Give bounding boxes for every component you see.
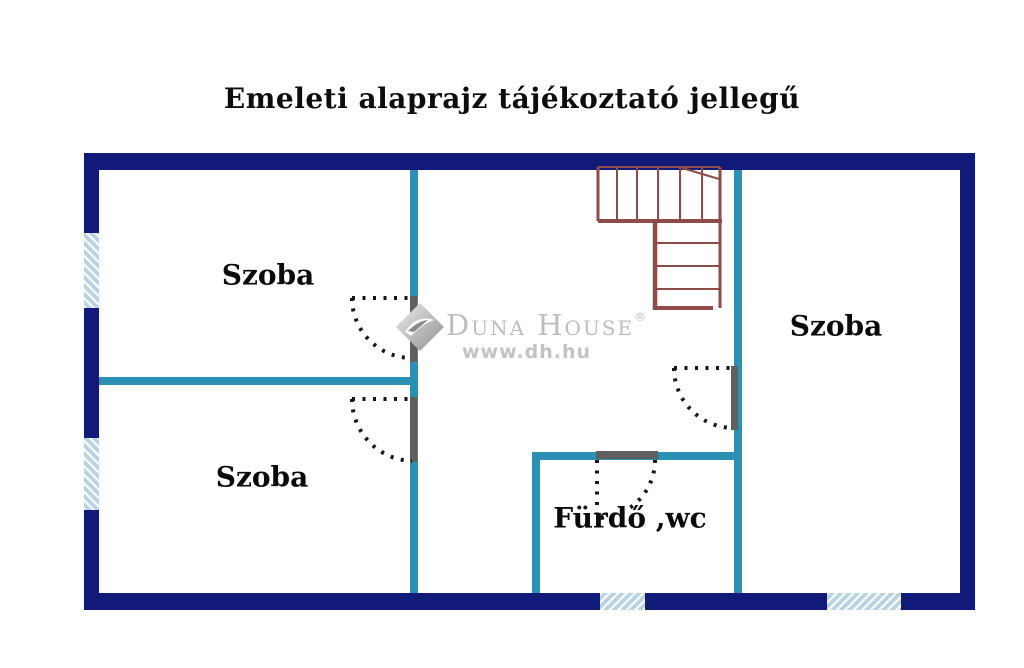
door-swing-room-right bbox=[674, 368, 734, 428]
door-swing-room-bottom-left bbox=[352, 399, 412, 461]
door-leaf-bathroom bbox=[596, 451, 658, 459]
watermark-url: www.dh.hu bbox=[462, 341, 591, 363]
stairs bbox=[598, 167, 722, 310]
room-label-bathroom: Fürdő ,wc bbox=[553, 502, 706, 535]
door-leaf-room-right bbox=[731, 366, 738, 430]
watermark-brand: Duna House® bbox=[446, 308, 646, 342]
room-label-top-left: Szoba bbox=[222, 259, 315, 292]
watermark-brand-text: Duna House bbox=[446, 308, 634, 342]
registered-mark: ® bbox=[634, 310, 646, 324]
door-leaf-room-bottom-left bbox=[410, 397, 417, 462]
floorplan-page: Emeleti alaprajz tájékoztató jellegű bbox=[0, 0, 1024, 668]
duna-house-logo-icon bbox=[394, 301, 446, 353]
room-label-right: Szoba bbox=[790, 310, 883, 343]
room-label-bottom-left: Szoba bbox=[216, 461, 309, 494]
